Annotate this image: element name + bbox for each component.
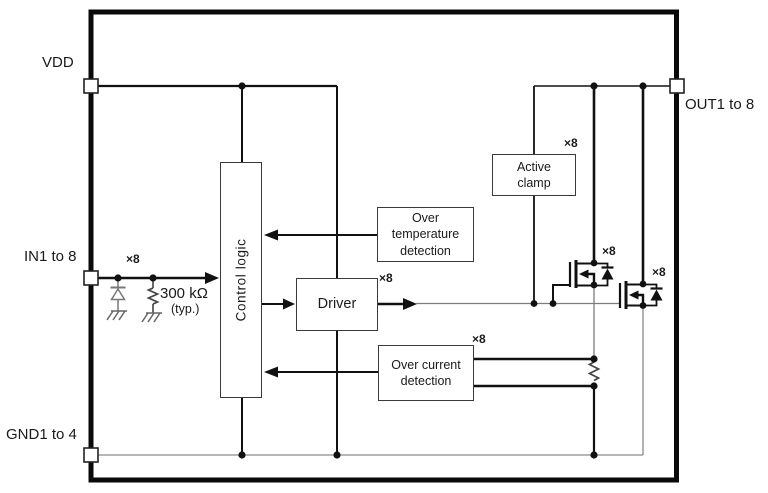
gnd-pad [84, 448, 98, 462]
esd-diode-icon [111, 280, 126, 311]
sense-resistor-icon [590, 359, 599, 386]
multiplier-driver: ×8 [379, 271, 393, 285]
ground-icon [142, 313, 162, 322]
control-logic-block: Control logic [220, 162, 262, 398]
in-pin-label: IN1 to 8 [24, 248, 77, 265]
vdd-rail [98, 86, 337, 278]
body-arrow [629, 291, 639, 300]
multiplier-over-current: ×8 [472, 332, 486, 346]
multiplier-input: ×8 [126, 252, 140, 266]
vdd-pin-label: VDD [42, 54, 74, 71]
active-clamp-block: Active clamp [492, 154, 576, 196]
mosfet-sense-icon [553, 260, 614, 304]
sense-network [590, 285, 599, 455]
active-clamp-label: Active clamp [517, 159, 551, 192]
over-temperature-block: Over temperature detection [377, 207, 474, 262]
body-diode-icon [643, 285, 663, 306]
control-logic-label: Control logic [232, 239, 250, 322]
pulldown-resistor-qualifier: (typ.) [171, 302, 199, 316]
pulldown-resistor-value: 300 kΩ [160, 285, 208, 302]
over-temperature-label: Over temperature detection [378, 210, 473, 260]
driver-out-arrowhead [403, 298, 417, 310]
vdd-pad [84, 79, 98, 93]
multiplier-output-fet: ×8 [652, 265, 666, 279]
block-diagram: Control logic Driver Over temperature de… [0, 0, 768, 493]
ground-icon [107, 311, 127, 320]
driver-block: Driver [296, 278, 378, 331]
over-current-label: Over current detection [391, 357, 460, 390]
out-pad [670, 79, 684, 93]
driver-in-arrowhead [283, 299, 295, 310]
input-arrowhead [205, 272, 219, 284]
over-temp-arrow [264, 230, 377, 241]
driver-label: Driver [318, 295, 357, 314]
gnd-pin-label: GND1 to 4 [6, 426, 77, 443]
body-diode-icon [594, 264, 614, 286]
pulldown-resistor-icon [149, 280, 158, 313]
multiplier-active-clamp: ×8 [564, 136, 578, 150]
body-arrow [579, 270, 589, 279]
out-pin-label: OUT1 to 8 [685, 96, 754, 113]
over-current-block: Over current detection [378, 345, 474, 401]
in-pad [84, 271, 98, 285]
multiplier-sense-fet: ×8 [602, 244, 616, 258]
